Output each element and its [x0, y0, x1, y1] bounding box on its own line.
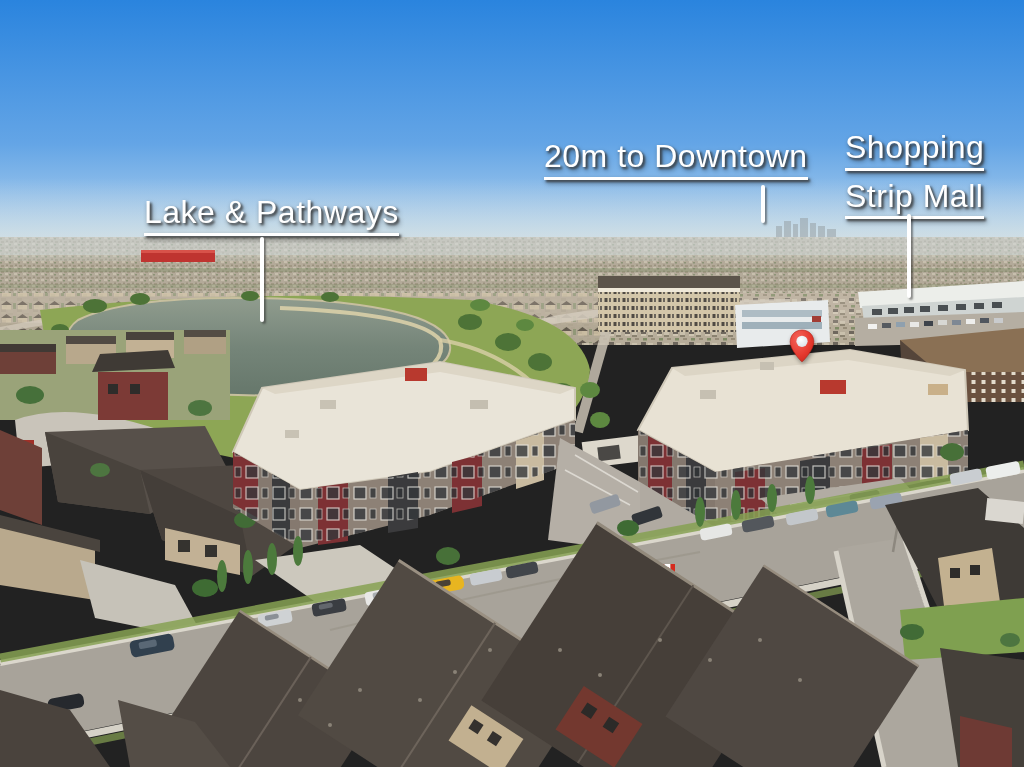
- aerial-photo: Lake & Pathways 20m to Downtown Shopping…: [0, 0, 1024, 767]
- far-suburbs: [0, 237, 1024, 299]
- annotation-lake-pathways-text: Lake & Pathways: [144, 196, 399, 236]
- annotation-mall-pointer-line: [907, 214, 911, 298]
- annotation-lake-pointer-line: [260, 237, 264, 322]
- annotation-shopping-line2: Strip Mall: [845, 180, 984, 220]
- annotation-downtown: 20m to Downtown: [544, 138, 808, 180]
- location-pin-icon: [789, 328, 815, 368]
- annotation-shopping-line1: Shopping: [845, 131, 984, 171]
- aerial-scene: [0, 0, 1024, 767]
- annotation-shopping-strip-mall: Shopping Strip Mall: [845, 131, 984, 219]
- annotation-downtown-pointer-line: [761, 185, 765, 223]
- annotation-lake-pathways: Lake & Pathways: [144, 194, 399, 236]
- annotation-downtown-text: 20m to Downtown: [544, 140, 808, 180]
